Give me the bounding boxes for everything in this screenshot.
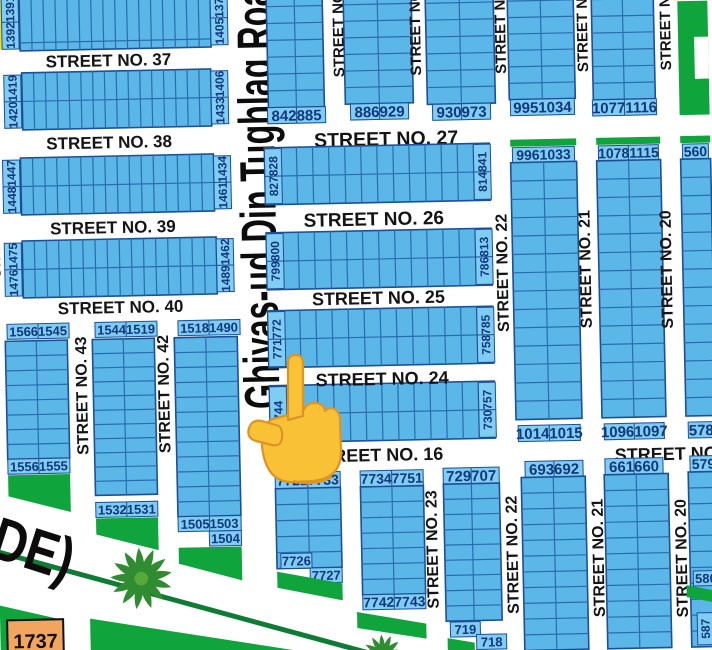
svg-text:587: 587: [699, 618, 712, 639]
svg-text:14761475: 14761475: [6, 242, 21, 296]
svg-text:15321531: 15321531: [98, 501, 156, 517]
svg-text:STREET NO. 22: STREET NO. 22: [503, 495, 522, 614]
svg-text:730757: 730757: [480, 389, 495, 430]
svg-text:842885: 842885: [271, 107, 321, 125]
svg-text:827828: 827828: [266, 156, 281, 197]
svg-text:15181490: 15181490: [180, 320, 238, 336]
svg-text:13921391: 13921391: [3, 0, 18, 49]
svg-text:578: 578: [689, 422, 712, 440]
svg-text:15051503: 15051503: [181, 516, 239, 532]
svg-text:579: 579: [692, 456, 712, 472]
svg-text:77427743: 77427743: [363, 593, 426, 610]
svg-text:STREET NO. 23: STREET NO. 23: [423, 490, 442, 609]
svg-text:14611434: 14611434: [215, 155, 230, 208]
svg-text:1737: 1737: [13, 631, 58, 650]
svg-text:77347751: 77347751: [360, 470, 423, 487]
svg-text:10771116: 10771116: [592, 99, 657, 117]
svg-text:STREET NO. 43: STREET NO. 43: [73, 336, 92, 455]
svg-text:STREET NO: STREET NO: [491, 0, 510, 74]
svg-text:930973: 930973: [436, 104, 486, 122]
svg-text:STREET NO. 26: STREET NO. 26: [303, 208, 444, 232]
svg-text:STREET NO. 24: STREET NO. 24: [315, 368, 448, 391]
svg-text:7726: 7726: [282, 553, 311, 569]
svg-text:771772: 771772: [270, 319, 285, 360]
svg-text:799800: 799800: [268, 241, 283, 282]
svg-text:STREET NO: STREET NO: [656, 0, 675, 71]
svg-text:14201419: 14201419: [5, 74, 20, 128]
svg-text:14481447: 14481447: [4, 160, 19, 214]
svg-text:15561555: 15561555: [10, 458, 68, 474]
svg-text:9951034: 9951034: [513, 99, 572, 117]
svg-text:DE): DE): [0, 504, 83, 593]
svg-text:719: 719: [454, 622, 476, 637]
svg-text:10781115: 10781115: [598, 144, 659, 161]
svg-text:15441519: 15441519: [97, 321, 155, 337]
svg-text:STREET NO. 21: STREET NO. 21: [576, 210, 595, 329]
svg-text:STREET NO: STREET NO: [573, 0, 592, 72]
svg-text:STREET NO. 20: STREET NO. 20: [657, 210, 676, 329]
svg-text:758785: 758785: [479, 314, 494, 355]
svg-text:718: 718: [481, 634, 503, 649]
svg-text:15661545: 15661545: [9, 323, 67, 339]
svg-text:560: 560: [684, 143, 708, 159]
svg-text:STREET NO: STREET NO: [406, 0, 425, 76]
svg-text:14331406: 14331406: [212, 70, 227, 124]
svg-text:STREET NO. 22: STREET NO. 22: [494, 214, 513, 333]
svg-text:10961097: 10961097: [601, 423, 668, 441]
svg-text:580: 580: [695, 571, 712, 586]
svg-text:STREET NO. 25: STREET NO. 25: [312, 287, 445, 310]
svg-text:STREET NO. 39: STREET NO. 39: [50, 217, 176, 239]
svg-text:10141015: 10141015: [516, 425, 583, 443]
svg-text:814841: 814841: [475, 151, 490, 192]
svg-text:STREET NO: STREET NO: [329, 0, 348, 77]
svg-text:886929: 886929: [354, 103, 404, 121]
svg-text:STREET NO. 38: STREET NO. 38: [46, 132, 172, 154]
svg-text:786813: 786813: [477, 236, 492, 277]
svg-text:14051379: 14051379: [212, 0, 227, 45]
svg-text:STREET NO. 37: STREET NO. 37: [45, 50, 171, 72]
svg-text:STREET NO. 40: STREET NO. 40: [58, 297, 184, 319]
svg-text:9961033: 9961033: [516, 146, 571, 163]
svg-text:STREET NO. 42: STREET NO. 42: [155, 335, 174, 454]
svg-text:1504: 1504: [211, 531, 241, 547]
